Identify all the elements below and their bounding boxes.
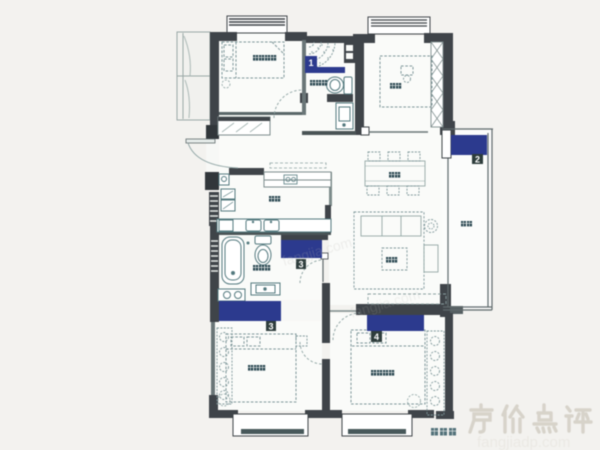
svg-text:fangjiadp.com: fangjiadp.com: [477, 434, 570, 450]
svg-text:1: 1: [308, 58, 313, 68]
svg-text:3: 3: [268, 322, 273, 332]
svg-text:4: 4: [374, 332, 379, 342]
svg-text:2: 2: [475, 155, 480, 165]
